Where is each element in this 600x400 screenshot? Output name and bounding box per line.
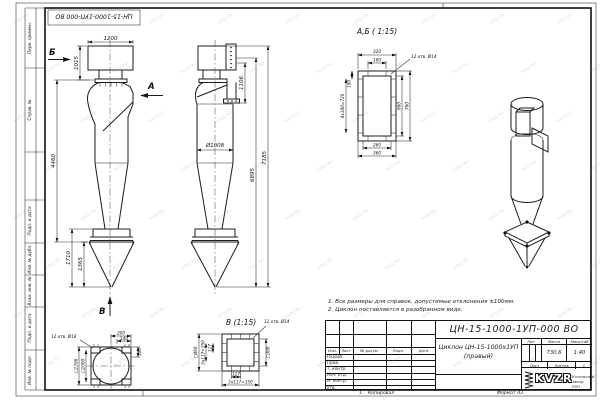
dim-front-cone-inner: 1365: [78, 257, 84, 271]
footer-format-label: Формат А3: [497, 391, 523, 396]
footer-sheet-num: 1: [359, 391, 362, 396]
section-v-view: В (1:15) 12 отв. Ø14 □460 3x117=350 117 …: [193, 318, 290, 387]
dim-side-height-inner: 6895: [250, 168, 256, 182]
dim-ab-660: 660: [397, 102, 402, 110]
view-arrow-label-a: А: [147, 82, 155, 92]
dim-base-140: 140: [120, 336, 128, 341]
tb-row-utv: Утв.: [327, 386, 353, 392]
titleblock-signature-zone: Изм. Лист № докум. Подп. Дата Разраб. Пр…: [326, 321, 436, 391]
dim-ab-720: 4x180=720: [340, 93, 345, 118]
dim-v-350-left: 3x117=350: [201, 340, 206, 365]
dim-side-diameter: Ø1008: [205, 142, 225, 149]
dim-side-flange-offset: 1106: [239, 76, 245, 90]
dim-ab-190: 190: [347, 80, 352, 88]
dim-base-200: 200: [117, 331, 125, 336]
dim-base-100: 100: [137, 348, 142, 356]
dim-ab-760: 760: [405, 102, 410, 110]
section-ab-title: А,Б ( 1:15): [356, 27, 397, 36]
isometric-view: [503, 98, 550, 270]
base-holes-note: 12 отв. Ø18: [51, 334, 77, 339]
dim-base-1060: □1060: [81, 358, 86, 373]
dim-front-body-height: 4460: [51, 154, 57, 168]
drawing-sheet: Перв. примен. Справ. № Подп. и дата Инв.…: [0, 0, 600, 400]
dim-base-1206: □1206: [74, 358, 79, 373]
side-view: Ø1008 1106 6895 7185: [191, 40, 271, 294]
sidebar-label-perv-primen: Перв. примен.: [27, 22, 33, 54]
tb-name-cell: Циклон ЦН-15-1000х1УП (правый): [436, 339, 522, 391]
dim-ab-360: 360: [373, 151, 381, 156]
section-v-holes-note: 12 отв. Ø14: [264, 319, 290, 324]
dim-v-460: □460: [193, 346, 198, 358]
top-stamp-doc-number: ЦН-15-1000-1УП-000 ВО: [55, 13, 132, 20]
spring-logo-icon: [524, 371, 534, 389]
note-1: 1. Все размеры для справок, допустимые о…: [328, 299, 515, 305]
dim-front-cone-outer: 1710: [66, 251, 72, 265]
sidebar-label-inv-dubl: Инв. № дубл.: [27, 244, 33, 273]
dim-ab-160: 160: [373, 58, 381, 63]
tb-company-cell: KVZR Котельный завод РЭП: [522, 368, 592, 391]
tb-name-line2: (правый): [436, 353, 521, 360]
dim-v-117-bottom: 117: [232, 372, 240, 377]
tb-col-list: Лист: [339, 347, 353, 354]
section-ab-holes-note: 12 отв. Ø14: [411, 54, 437, 59]
tb-col-data: Дата: [411, 347, 436, 354]
sidebar-label-sprav-no: Справ. №: [27, 99, 33, 120]
tb-scale-value: 1:40: [567, 345, 592, 361]
dim-ab-320: 320: [373, 49, 381, 54]
sidebar-label-podp-data-2: Подп. и дата: [27, 313, 33, 343]
sidebar-label-vzam-inv: Взам. инв. №: [27, 276, 33, 306]
tb-company-line2: завод РЭП: [572, 379, 592, 389]
tb-col-dokum: № докум.: [353, 347, 386, 354]
title-block: Изм. Лист № докум. Подп. Дата Разраб. Пр…: [325, 320, 591, 390]
tb-stats-zone: Лит. Масса Масштаб 730,6 1:40 Лист Листо…: [522, 339, 592, 391]
view-arrow-label-b: Б: [49, 48, 56, 58]
tb-col-izm: Изм.: [326, 347, 339, 354]
view-arrow-label-v: В: [99, 307, 105, 317]
sidebar-label-inv-podl: Инв. № подл.: [27, 355, 33, 385]
tb-doc-number: ЦН-15-1000-1УП-000 ВО: [436, 321, 592, 339]
dim-v-350-bottom: 3x117=350: [228, 380, 253, 385]
dim-v-117-left: 117: [208, 344, 213, 352]
dim-side-height-total: 7185: [262, 151, 268, 165]
dim-ab-260: 260: [373, 143, 381, 148]
dim-front-top-height: 1015: [74, 56, 80, 70]
dim-front-width: 1200: [104, 36, 118, 42]
tb-mass-value: 730,6: [542, 345, 567, 361]
footer-copied-label: Копировал: [368, 391, 394, 396]
sidebar-label-podp-data-1: Подп. и дата: [27, 206, 33, 236]
dim-v-300: □300: [266, 346, 271, 358]
base-detail-view: 12 отв. Ø18 □1206 □1060 200 140 100: [51, 331, 142, 390]
section-ab-view: А,Б ( 1:15) 12 отв. Ø14 320 160 190 4x18…: [340, 27, 437, 158]
front-view: 1200 1015 4460 1710 1365 Б А В: [48, 36, 163, 317]
tb-logo-text: KVZR: [535, 372, 572, 385]
note-2: 2. Циклон поставляется в разобранном вид…: [328, 307, 463, 313]
tb-col-podp: Подп.: [386, 347, 411, 354]
section-v-title: В (1:15): [226, 318, 256, 327]
tb-name-line1: Циклон ЦН-15-1000х1УП: [436, 344, 521, 351]
